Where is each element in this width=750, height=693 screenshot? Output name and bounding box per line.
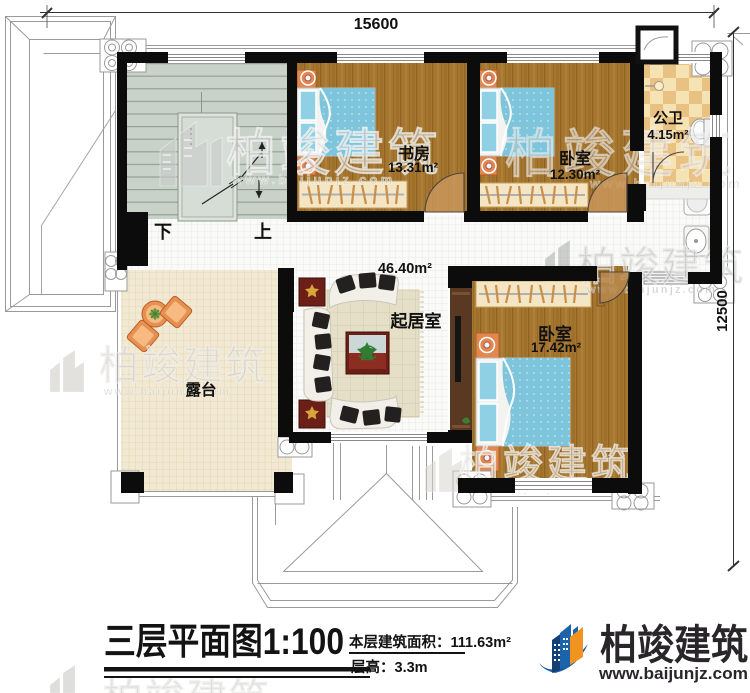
svg-text:公卫: 公卫 — [653, 110, 683, 127]
svg-text:层高：3.3m: 层高：3.3m — [351, 658, 428, 676]
svg-text:4.15m²: 4.15m² — [647, 127, 689, 142]
svg-text:上: 上 — [254, 222, 272, 242]
svg-text:柏竣建筑: 柏竣建筑 — [99, 344, 267, 388]
svg-text:柏竣建筑: 柏竣建筑 — [600, 622, 748, 668]
svg-text:柏竣建筑: 柏竣建筑 — [103, 677, 271, 693]
svg-text:www.baijunjz.com: www.baijunjz.com — [231, 172, 395, 187]
svg-text:12500: 12500 — [714, 290, 731, 332]
svg-text:15600: 15600 — [354, 16, 399, 33]
svg-text:17.42m²: 17.42m² — [531, 340, 582, 355]
svg-text:三层平面图1:100: 三层平面图1:100 — [104, 621, 344, 662]
svg-text:本层建筑面积：111.63m²: 本层建筑面积：111.63m² — [349, 633, 511, 651]
svg-text:12.30m²: 12.30m² — [550, 167, 601, 182]
svg-text:下: 下 — [154, 222, 172, 242]
svg-text:露台: 露台 — [185, 380, 216, 399]
svg-text:46.40m²: 46.40m² — [378, 261, 432, 277]
svg-text:www.baijunjz.com: www.baijunjz.com — [598, 665, 748, 683]
svg-text:卧室: 卧室 — [559, 149, 591, 168]
svg-text:13.31m²: 13.31m² — [388, 160, 439, 175]
svg-text:起居室: 起居室 — [390, 311, 442, 331]
